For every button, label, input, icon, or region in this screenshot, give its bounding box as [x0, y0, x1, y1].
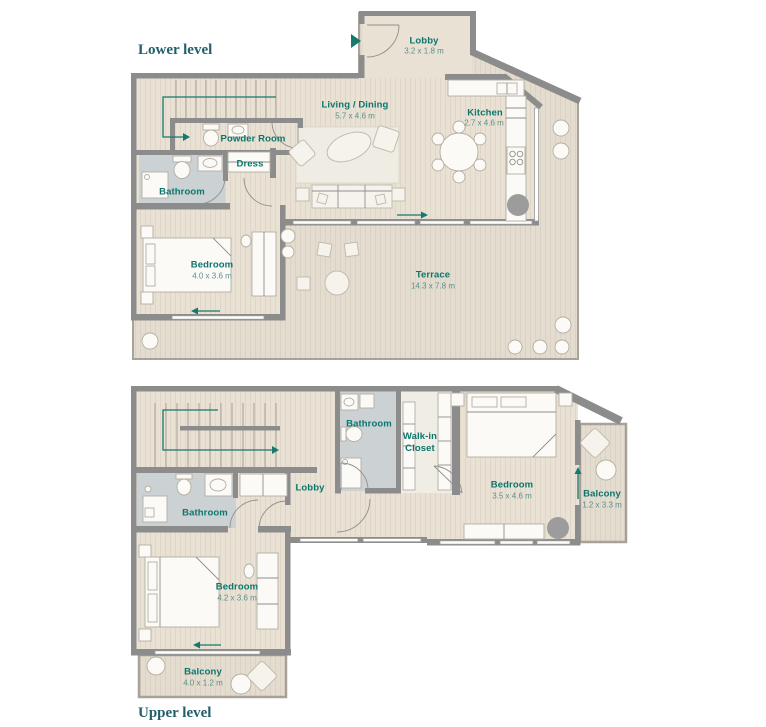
room-label-dress: Dress [237, 159, 264, 170]
room-label-balcony-bottom: Balcony [184, 667, 222, 678]
lower-level-label: Lower level [138, 42, 212, 59]
room-dims-balcony-right: 1.2 x 3.3 m [582, 501, 622, 510]
room-label-walkin: Walk-in Closet [394, 431, 446, 455]
room-dims-lobby-lower: 3.2 x 1.8 m [404, 47, 444, 56]
room-dims-kitchen: 2.7 x 4.6 m [464, 119, 504, 128]
column-upper [547, 517, 569, 539]
room-dims-bedroom-lower: 4.0 x 3.6 m [192, 272, 232, 281]
floor-plan-page: Lower level Lobby 3.2 x 1.8 m Living / D… [0, 0, 766, 727]
room-dims-balcony-bottom: 4.0 x 1.2 m [183, 679, 223, 688]
room-label-bathroom-lower: Bathroom [159, 187, 205, 198]
room-dims-bedroom-left: 4.2 x 3.6 m [217, 594, 257, 603]
room-label-living: Living / Dining [322, 100, 389, 111]
room-label-lobby-upper: Lobby [296, 483, 325, 494]
room-label-balcony-right: Balcony [583, 489, 621, 500]
room-label-bathroom-left: Bathroom [182, 508, 228, 519]
column [507, 194, 529, 216]
room-label-terrace: Terrace [416, 270, 450, 281]
room-label-bathroom-top: Bathroom [346, 419, 392, 430]
upper-level-label: Upper level [138, 705, 211, 722]
room-label-bedroom-left: Bedroom [216, 582, 258, 593]
room-label-lobby-lower: Lobby [410, 36, 439, 47]
lower-level-plan [131, 11, 580, 359]
upper-level-plan [131, 386, 626, 697]
room-dims-terrace: 14.3 x 7.8 m [411, 282, 455, 291]
room-label-kitchen: Kitchen [467, 108, 503, 119]
room-dims-bedroom-right: 3.5 x 4.6 m [492, 492, 532, 501]
room-label-bedroom-right: Bedroom [491, 480, 533, 491]
room-label-powder: Powder Room [221, 134, 286, 145]
dining-table [440, 133, 478, 171]
room-label-bedroom-lower: Bedroom [191, 260, 233, 271]
room-dims-living: 5.7 x 4.6 m [335, 112, 375, 121]
